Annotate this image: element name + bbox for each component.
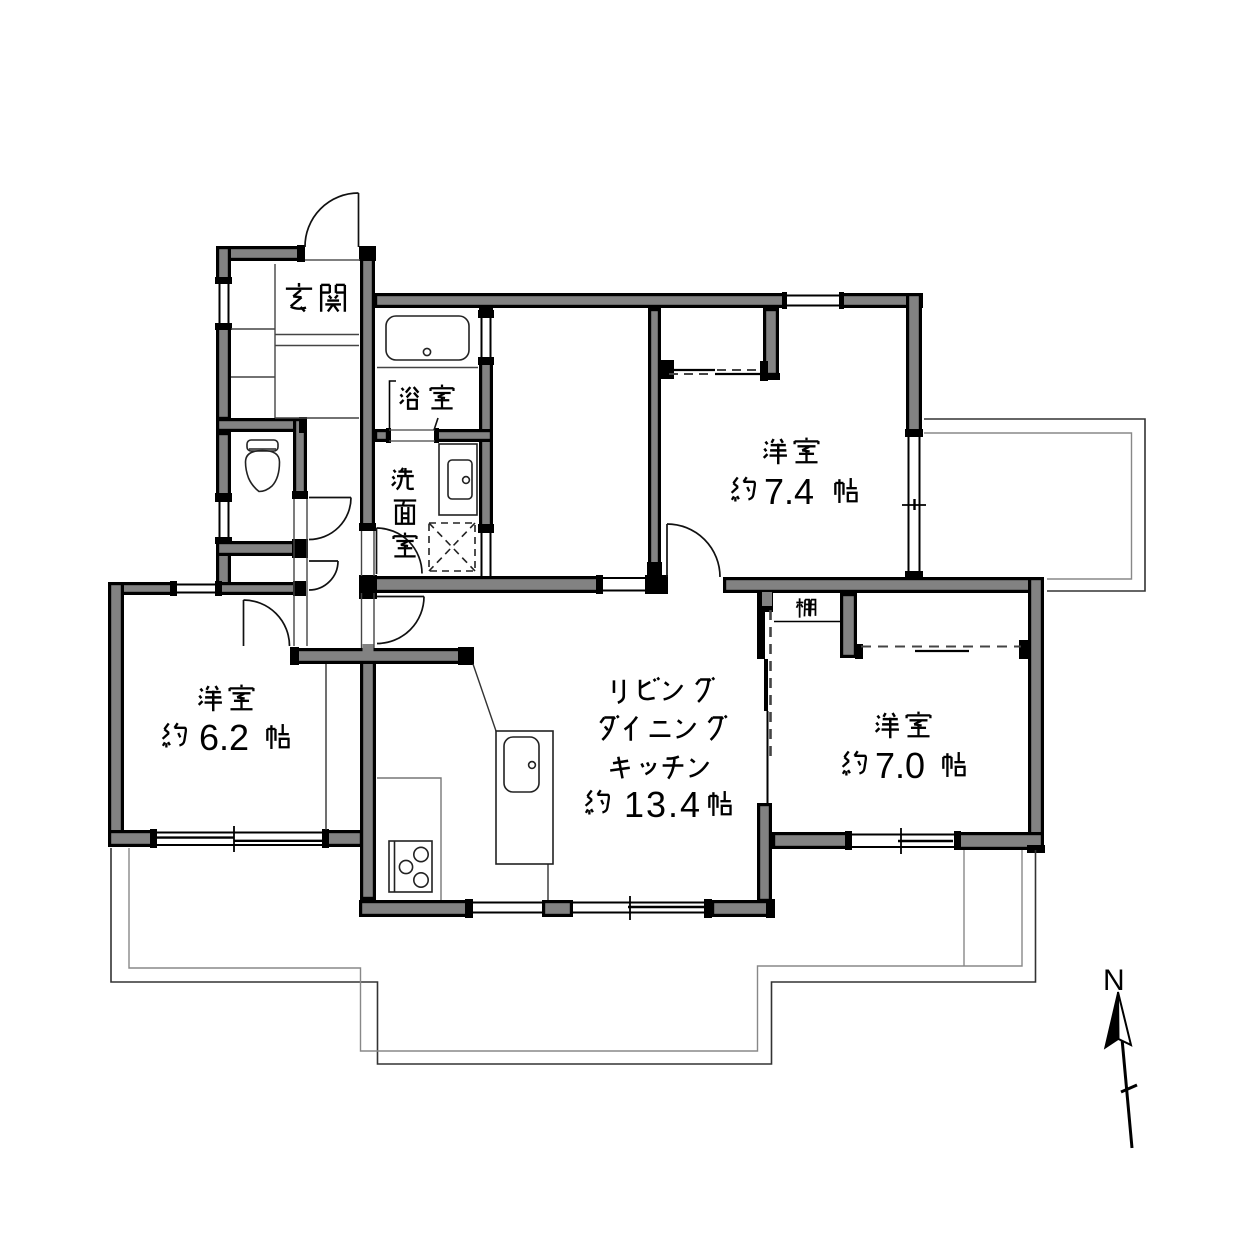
svg-text:13.4: 13.4 [624,784,702,825]
svg-text:7.4: 7.4 [764,471,814,512]
svg-text:7.0: 7.0 [875,745,925,786]
svg-text:N: N [1103,964,1125,997]
svg-text:6.2: 6.2 [199,717,249,758]
